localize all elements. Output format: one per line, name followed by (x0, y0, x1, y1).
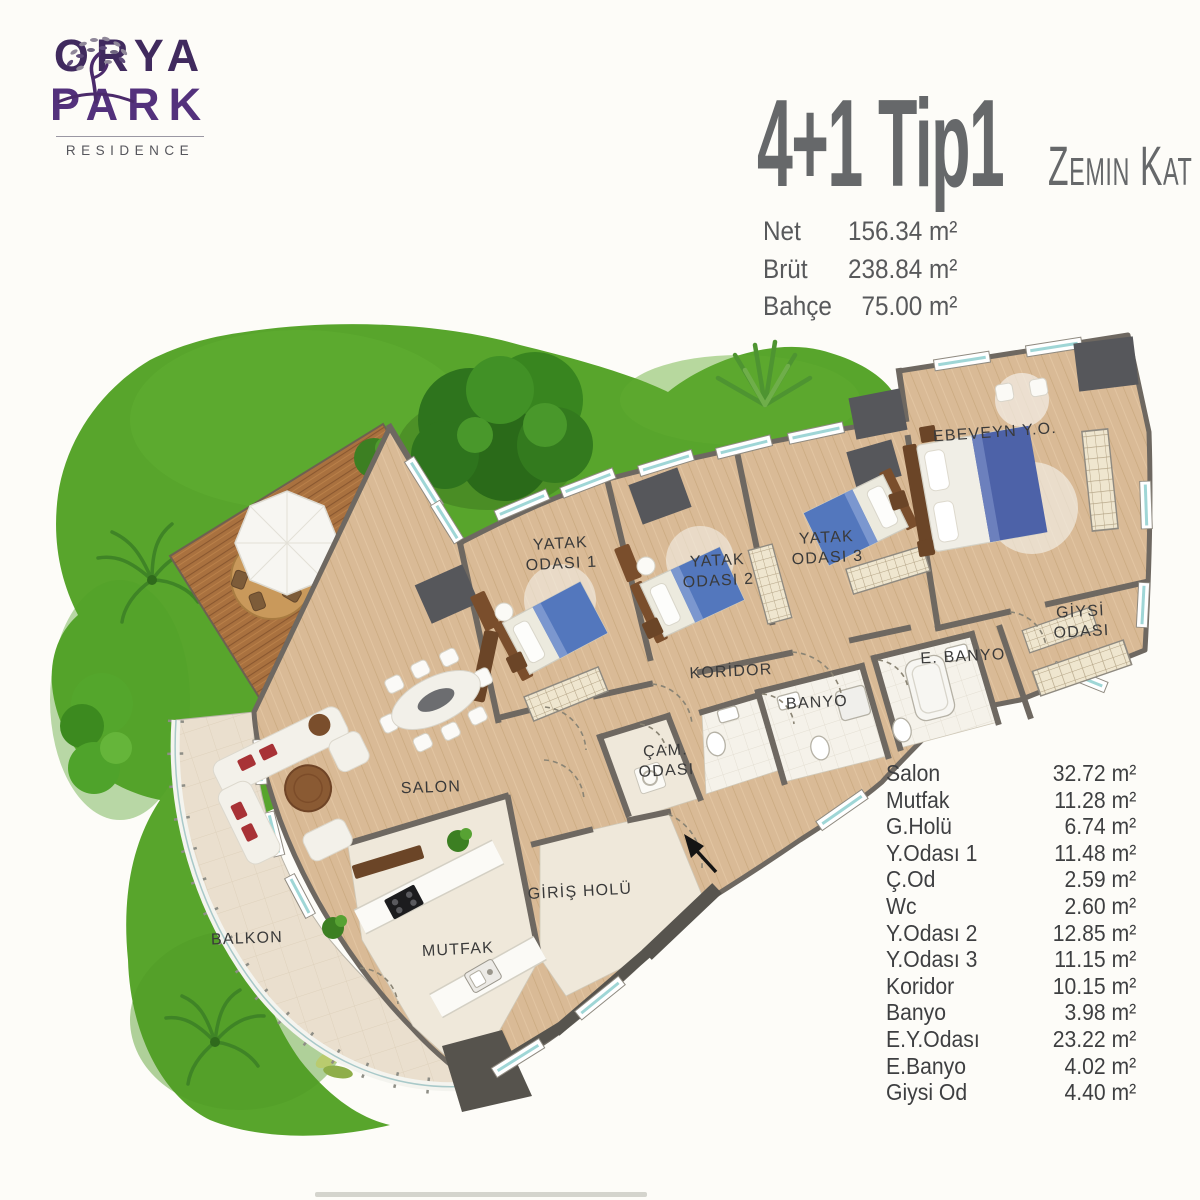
room-list-row: Y.Odası 212.85 m² (886, 920, 1136, 947)
stat-value: 156.34 m² (848, 216, 957, 247)
room-list-row: Banyo3.98 m² (886, 999, 1136, 1026)
room-label-yatak2: YATAKODASI 2 (681, 550, 754, 593)
room-list-row: Y.Odası 311.15 m² (886, 946, 1136, 973)
stat-value: 75.00 m² (861, 291, 957, 322)
stat-row-bahce: Bahçe 75.00 m² (763, 291, 957, 329)
room-list-row: Salon32.72 m² (886, 760, 1136, 787)
bottom-strip (315, 1192, 647, 1197)
room-list-row: Mutfak11.28 m² (886, 787, 1136, 814)
plan-title: 4+1 Tip1 (757, 94, 1003, 196)
room-list-row: E.Banyo4.02 m² (886, 1053, 1136, 1080)
room-label-salon: SALON (401, 777, 462, 799)
stat-label: Net (763, 216, 801, 247)
room-list-row: Y.Odası 111.48 m² (886, 840, 1136, 867)
room-area-list: Salon32.72 m² Mutfak11.28 m² G.Holü6.74 … (886, 760, 1136, 1106)
room-label-giysi: GİYSİODASI (1052, 601, 1110, 643)
tree-icon (50, 32, 142, 106)
room-label-mutfak: MUTFAK (421, 938, 494, 961)
floor-plan-page: ORYA PARK RESIDENCE 4+1 Tip1 Zemin Kat N… (0, 0, 1200, 1200)
brand-logo: ORYA PARK RESIDENCE (50, 32, 210, 158)
room-list-row: Giysi Od4.40 m² (886, 1079, 1136, 1106)
stat-label: Bahçe (763, 291, 832, 322)
logo-divider (56, 136, 204, 137)
room-list-row: E.Y.Odası23.22 m² (886, 1026, 1136, 1053)
room-label-yatak1: YATAKODASI 1 (524, 533, 597, 576)
room-list-row: G.Holü6.74 m² (886, 813, 1136, 840)
plan-title-row: 4+1 Tip1 Zemin Kat (757, 94, 1200, 196)
stat-label: Brüt (763, 254, 808, 285)
floor-label: Zemin Kat (1048, 141, 1192, 191)
area-stats: Net 156.34 m² Brüt 238.84 m² Bahçe 75.00… (763, 216, 957, 329)
logo-subtitle: RESIDENCE (50, 143, 210, 158)
room-label-balkon: BALKON (211, 928, 284, 950)
room-label-cam-odasi: ÇAM.ODASI (637, 740, 695, 782)
room-label-yatak3: YATAKODASI 3 (790, 527, 863, 570)
room-label-banyo: BANYO (786, 692, 849, 715)
stat-row-brut: Brüt 238.84 m² (763, 254, 957, 292)
room-list-row: Wc2.60 m² (886, 893, 1136, 920)
room-list-row: Koridor10.15 m² (886, 973, 1136, 1000)
room-list-row: Ç.Od2.59 m² (886, 866, 1136, 893)
stat-row-net: Net 156.34 m² (763, 216, 957, 254)
stat-value: 238.84 m² (848, 254, 957, 285)
